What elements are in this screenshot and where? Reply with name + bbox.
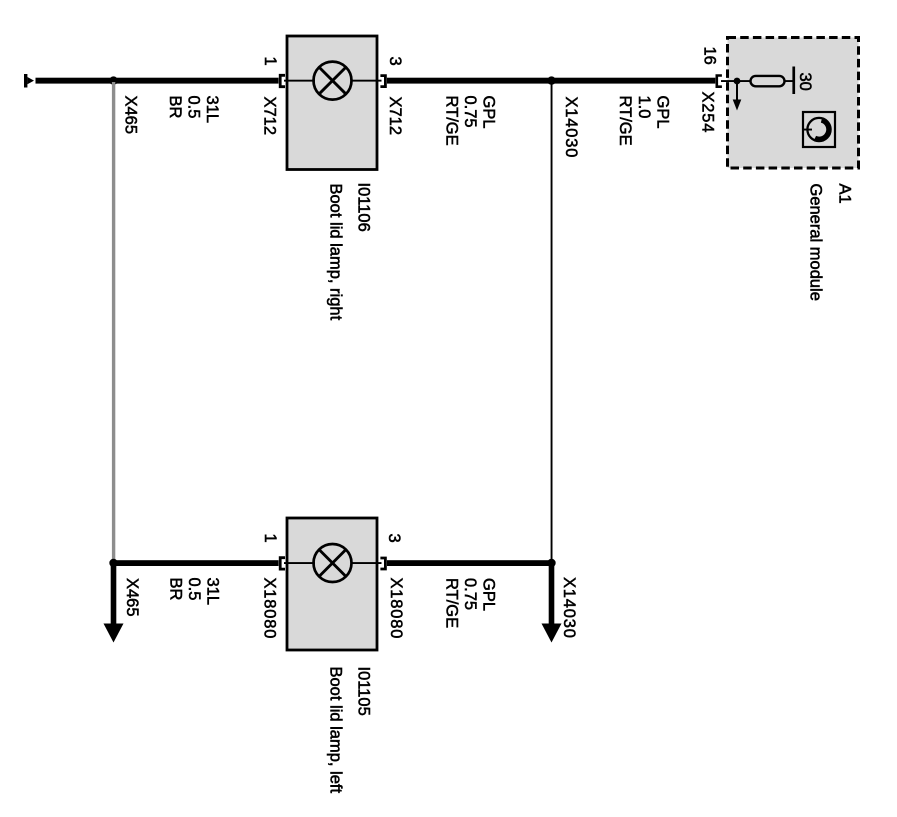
svg-text:X465: X465 (123, 578, 141, 617)
svg-text:1: 1 (261, 534, 279, 543)
svg-text:0.5: 0.5 (185, 578, 203, 601)
svg-text:1: 1 (261, 57, 279, 66)
svg-text:31L: 31L (203, 96, 221, 124)
svg-text:X18080: X18080 (261, 578, 279, 640)
svg-text:30: 30 (796, 73, 814, 91)
svg-text:GPL: GPL (654, 96, 672, 129)
svg-text:3: 3 (385, 534, 403, 543)
svg-text:I01106: I01106 (355, 183, 373, 232)
svg-text:X712: X712 (386, 97, 404, 136)
svg-text:0.75: 0.75 (461, 578, 479, 610)
svg-text:BR: BR (166, 96, 184, 119)
svg-text:X465: X465 (122, 96, 140, 135)
svg-text:BR: BR (167, 578, 185, 601)
svg-text:31L: 31L (204, 578, 222, 606)
svg-text:X14030: X14030 (562, 97, 580, 159)
svg-text:0.75: 0.75 (461, 96, 479, 128)
svg-text:Boot lid lamp, right: Boot lid lamp, right (327, 184, 345, 321)
svg-text:3: 3 (386, 57, 404, 66)
svg-text:RT/GE: RT/GE (443, 96, 461, 146)
svg-text:GPL: GPL (480, 578, 498, 611)
svg-text:RT/GE: RT/GE (616, 96, 634, 146)
svg-text:General module: General module (807, 184, 825, 301)
svg-text:RT/GE: RT/GE (443, 578, 461, 628)
svg-text:16: 16 (701, 47, 719, 65)
svg-text:GPL: GPL (480, 96, 498, 129)
svg-text:1.0: 1.0 (635, 96, 653, 119)
svg-text:X712: X712 (261, 97, 279, 136)
svg-text:X254: X254 (699, 92, 717, 134)
svg-text:0.5: 0.5 (185, 96, 203, 119)
svg-text:X14030: X14030 (560, 577, 578, 639)
svg-text:I01105: I01105 (355, 667, 373, 716)
svg-text:A1: A1 (836, 184, 854, 204)
svg-text:X18080: X18080 (387, 578, 405, 640)
svg-text:Boot lid lamp, left: Boot lid lamp, left (327, 667, 345, 794)
